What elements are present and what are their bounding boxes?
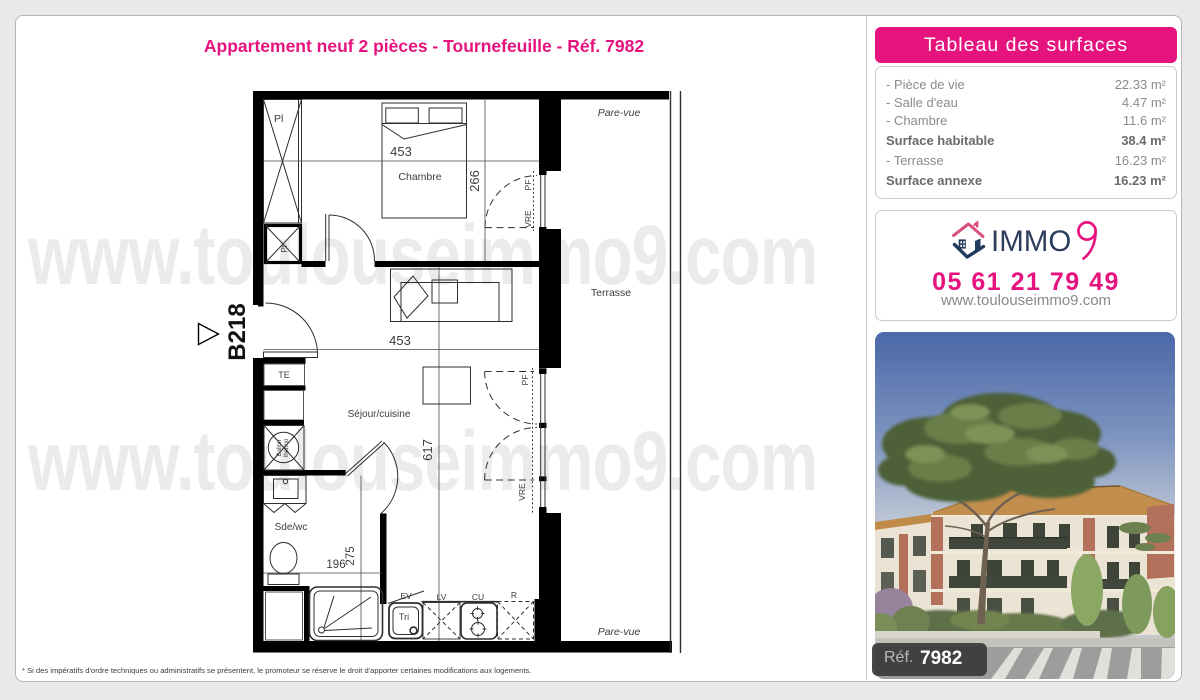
svg-text:B218: B218: [224, 303, 251, 360]
svg-text:Ballon: Ballon: [277, 440, 283, 457]
svg-text:PF: PF: [520, 375, 530, 386]
svg-text:VRE: VRE: [523, 210, 533, 228]
svg-text:IMMO: IMMO: [991, 225, 1071, 258]
svg-text:Pare-vue: Pare-vue: [598, 626, 641, 638]
svg-text:PF: PF: [523, 180, 533, 191]
svg-text:Terrasse: Terrasse: [591, 287, 631, 299]
svg-text:453: 453: [390, 144, 412, 159]
svg-text:Tri: Tri: [399, 612, 409, 622]
svg-text:275: 275: [345, 546, 357, 565]
svg-text:196: 196: [326, 559, 345, 571]
svg-text:Pl: Pl: [279, 245, 289, 253]
svg-text:TE: TE: [278, 370, 290, 380]
svg-text:453: 453: [389, 333, 411, 348]
svg-text:Pl: Pl: [274, 113, 283, 125]
svg-text:Séjour/cuisine: Séjour/cuisine: [348, 409, 411, 420]
svg-text:617: 617: [420, 439, 435, 461]
svg-text:LV: LV: [437, 592, 447, 602]
svg-text:thermo: thermo: [284, 438, 290, 457]
svg-text:R: R: [511, 590, 517, 600]
svg-text:CU: CU: [472, 592, 484, 602]
svg-text:VRE: VRE: [517, 483, 527, 501]
svg-text:EV: EV: [400, 591, 412, 601]
svg-text:Chambre: Chambre: [398, 171, 441, 183]
svg-text:Sde/wc: Sde/wc: [275, 522, 308, 533]
svg-text:Pare-vue: Pare-vue: [598, 107, 641, 119]
svg-text:266: 266: [467, 170, 482, 192]
